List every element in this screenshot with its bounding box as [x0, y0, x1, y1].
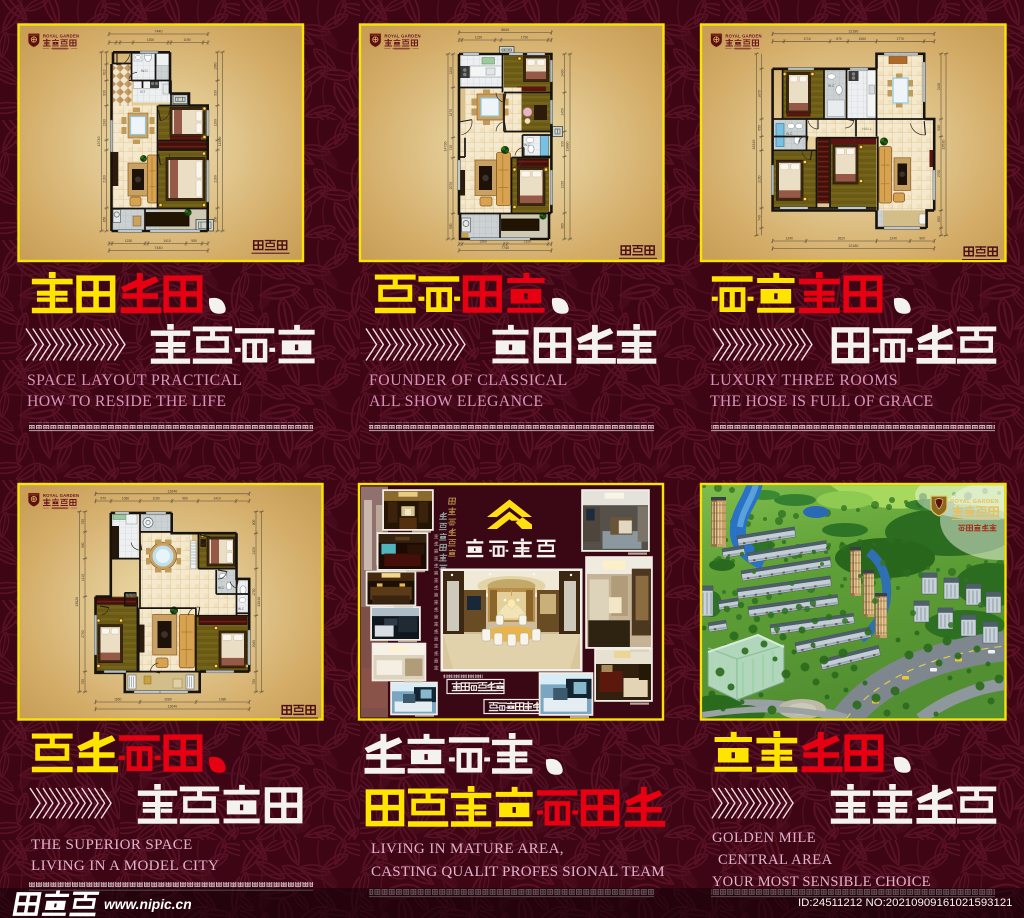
svg-text:1750: 1750	[521, 36, 529, 40]
svg-text:1240: 1240	[890, 237, 898, 241]
svg-text:6640: 6640	[501, 28, 509, 32]
svg-text:650: 650	[757, 125, 761, 131]
svg-text:2750: 2750	[937, 170, 941, 178]
svg-text:930: 930	[102, 90, 106, 96]
svg-text:HALL: HALL	[862, 126, 873, 131]
svg-text:1240: 1240	[786, 237, 794, 241]
svg-text:11340: 11340	[218, 137, 222, 147]
svg-text:W.C: W.C	[524, 143, 531, 147]
svg-text:2160: 2160	[213, 175, 217, 183]
svg-text:1870: 1870	[449, 109, 453, 117]
svg-text:1710: 1710	[803, 37, 811, 41]
svg-text:750: 750	[81, 679, 85, 685]
svg-text:2080: 2080	[252, 640, 256, 648]
svg-text:13040: 13040	[257, 597, 261, 607]
svg-text:1650: 1650	[114, 698, 122, 702]
svg-text:1280: 1280	[213, 119, 217, 127]
svg-text:1450: 1450	[560, 108, 564, 116]
svg-text:800: 800	[252, 519, 256, 525]
svg-text:1080: 1080	[122, 497, 130, 501]
svg-text:HOW TO RESIDE THE LIFE: HOW TO RESIDE THE LIFE	[27, 393, 226, 410]
svg-text:13820: 13820	[75, 597, 79, 607]
svg-text:7740: 7740	[501, 246, 509, 250]
svg-text:1410: 1410	[213, 497, 221, 501]
svg-text:960: 960	[560, 223, 564, 229]
svg-text:13740: 13740	[97, 137, 101, 147]
svg-text:2100: 2100	[560, 181, 564, 189]
svg-text:W.C: W.C	[786, 132, 793, 136]
svg-text:W.C: W.C	[238, 607, 245, 611]
svg-text:750: 750	[81, 519, 85, 525]
svg-text:960: 960	[182, 497, 188, 501]
svg-text:13340: 13340	[752, 140, 756, 150]
svg-text:670: 670	[836, 37, 842, 41]
svg-text:W.C: W.C	[828, 84, 835, 88]
svg-text:650: 650	[937, 216, 941, 222]
svg-text:LIVING IN A MODEL CITY: LIVING IN A MODEL CITY	[31, 858, 219, 874]
svg-text:KIT: KIT	[140, 90, 146, 94]
svg-text:ID:24511212 NO:202109091610215: ID:24511212 NO:20210909161021593121	[798, 897, 1013, 909]
svg-text:1230: 1230	[475, 36, 483, 40]
svg-text:1980: 1980	[219, 698, 227, 702]
svg-text:570: 570	[100, 497, 106, 501]
svg-text:750: 750	[252, 679, 256, 685]
svg-text:1300: 1300	[147, 38, 155, 42]
svg-text:740: 740	[757, 215, 761, 221]
svg-text:ALL SHOW ELEGANCE: ALL SHOW ELEGANCE	[369, 393, 543, 410]
svg-text:2070: 2070	[449, 182, 453, 190]
svg-text:CASTING QUALIT PROFES SIONAL: CASTING QUALIT PROFES SIONAL TEAM	[371, 864, 665, 880]
svg-text:14730: 14730	[444, 142, 448, 152]
svg-text:590: 590	[191, 239, 197, 243]
svg-text:1430: 1430	[560, 69, 564, 77]
svg-text:2790: 2790	[81, 630, 85, 638]
svg-text:2150: 2150	[757, 175, 761, 183]
svg-text:850: 850	[213, 217, 217, 223]
svg-text:930: 930	[213, 90, 217, 96]
svg-text:2080: 2080	[164, 698, 172, 702]
svg-text:610: 610	[102, 69, 106, 75]
svg-text:11640: 11640	[167, 489, 177, 493]
svg-text:650: 650	[937, 125, 941, 131]
svg-text:13880: 13880	[566, 142, 570, 152]
svg-text:1410: 1410	[81, 574, 85, 582]
svg-text:ROYAL GARDEN: ROYAL GARDEN	[43, 493, 79, 498]
svg-text:W.C: W.C	[218, 586, 225, 590]
svg-text:THE HOSE IS FULL OF GRACE: THE HOSE IS FULL OF GRACE	[710, 393, 933, 410]
svg-text:2620: 2620	[838, 237, 846, 241]
svg-text:1190: 1190	[152, 497, 159, 501]
svg-text:900: 900	[919, 237, 925, 241]
svg-text:THE SUPERIOR SPACE: THE SUPERIOR SPACE	[31, 837, 193, 853]
svg-text:1770: 1770	[897, 37, 905, 41]
svg-text:2430: 2430	[937, 83, 941, 91]
svg-text:FOUNDER OF CLASSICAL: FOUNDER OF CLASSICAL	[369, 372, 568, 389]
svg-text:12180: 12180	[848, 29, 858, 33]
svg-text:LIVING IN MATURE AREA,: LIVING IN MATURE AREA,	[371, 841, 564, 857]
svg-text:1870: 1870	[757, 90, 761, 98]
svg-text:11640: 11640	[167, 705, 177, 709]
svg-text:7440: 7440	[155, 246, 163, 250]
svg-text:12180: 12180	[848, 244, 858, 248]
svg-text:SPACE LAYOUT PRACTICAL: SPACE LAYOUT PRACTICAL	[27, 372, 242, 389]
svg-text:1240: 1240	[449, 67, 453, 75]
svg-text:1190: 1190	[183, 38, 190, 42]
svg-text:1060: 1060	[859, 37, 867, 41]
svg-text:CENTRAL AREA: CENTRAL AREA	[718, 852, 833, 868]
svg-text:1410: 1410	[163, 239, 171, 243]
svg-text:W.C: W.C	[141, 69, 148, 73]
svg-text:1320: 1320	[252, 547, 256, 555]
svg-text:930: 930	[560, 141, 564, 147]
svg-text:ROYAL GARDEN: ROYAL GARDEN	[43, 33, 79, 38]
svg-text:www.nipic.cn: www.nipic.cn	[104, 897, 192, 912]
svg-text:990: 990	[81, 542, 85, 548]
svg-text:740: 740	[449, 145, 453, 151]
svg-text:7440: 7440	[155, 30, 163, 34]
svg-text:LUXURY THREE ROOMS: LUXURY THREE ROOMS	[710, 372, 898, 389]
svg-text:YOUR MOST SENSIBLE CHOICE: YOUR MOST SENSIBLE CHOICE	[712, 874, 931, 890]
svg-text:ROYAL GARDEN: ROYAL GARDEN	[950, 499, 999, 505]
svg-text:2160: 2160	[102, 175, 106, 183]
svg-text:950: 950	[449, 223, 453, 229]
svg-text:ROYAL GARDEN: ROYAL GARDEN	[725, 33, 761, 38]
svg-text:1060: 1060	[213, 62, 217, 70]
svg-text:1750: 1750	[252, 588, 256, 596]
svg-text:850: 850	[102, 217, 106, 223]
svg-text:1280: 1280	[102, 119, 106, 127]
svg-text:ROYAL GARDEN: ROYAL GARDEN	[384, 33, 420, 38]
svg-text:1230: 1230	[125, 239, 133, 243]
svg-text:13510: 13510	[942, 140, 946, 150]
svg-text:GOLDEN MILE: GOLDEN MILE	[712, 830, 816, 846]
